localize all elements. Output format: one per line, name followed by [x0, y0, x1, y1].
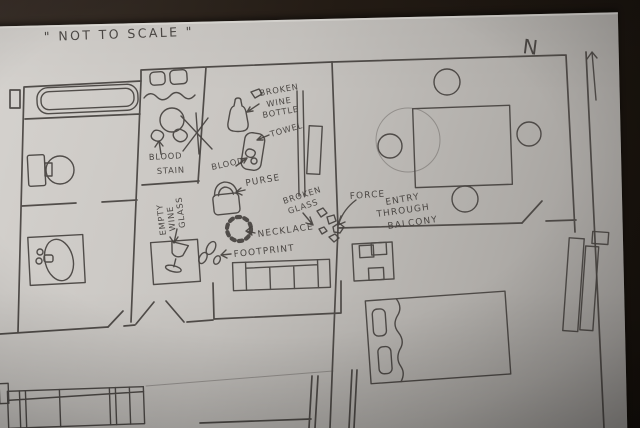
- pillow: [372, 309, 387, 337]
- purse: [211, 181, 240, 216]
- bed: [365, 291, 510, 384]
- balcony-chair-bottom: [452, 186, 478, 212]
- balcony-chair-top: [434, 69, 460, 95]
- blood-on-towel: [246, 149, 256, 158]
- floor-plan-sketch: " NOT TO SCALE " N BROKEN WINE BOTTLE TO…: [0, 0, 640, 428]
- balcony-chair-left: [378, 134, 402, 158]
- double-door-swings: [136, 301, 184, 324]
- overturned-stool: [160, 108, 184, 132]
- living-room-evidence: [197, 89, 344, 291]
- label-line: BROKEN: [259, 81, 300, 98]
- toilet: [27, 155, 74, 187]
- balcony-door-swing: [522, 201, 542, 223]
- label-line: STAIN: [157, 165, 186, 176]
- sliding-balcony-door: [297, 91, 322, 196]
- balcony: [376, 69, 541, 212]
- kitchen-counter: [144, 69, 195, 99]
- empty-wine-glass: [165, 242, 189, 274]
- couch-nook-outline: [213, 281, 341, 319]
- broken-wine-bottle-label: BROKEN WINE BOTTLE: [247, 81, 300, 120]
- arrow-to-entry-point: [338, 200, 356, 225]
- balcony-table: [413, 105, 513, 187]
- towel-label: TOWEL: [257, 120, 304, 140]
- not-to-scale-note: " NOT TO SCALE ": [44, 24, 195, 44]
- annotations: " NOT TO SCALE " N BROKEN WINE BOTTLE TO…: [44, 24, 597, 260]
- crime-scene-sketch-photo: " NOT TO SCALE " N BROKEN WINE BOTTLE TO…: [0, 0, 640, 428]
- pencil-guide-line: [146, 371, 333, 386]
- footprint-label: FOOTPRINT: [221, 244, 295, 260]
- kitchen: [144, 69, 212, 154]
- bathroom-walls: [18, 81, 141, 332]
- broken-glass-label: BROKEN GLASS: [282, 184, 323, 225]
- purse-label: PURSE: [236, 173, 281, 195]
- living-room-walls: [330, 62, 338, 428]
- label-line: BALCONY: [387, 215, 439, 232]
- label-line: FOOTPRINT: [233, 244, 295, 260]
- label-line: NECKLACE: [257, 222, 314, 240]
- hallway-walls: [200, 370, 357, 428]
- broken-glass-shards: [317, 208, 344, 242]
- blanket-edge: [393, 299, 405, 382]
- bottom-walls: [0, 320, 213, 334]
- label-line: BLOOD: [149, 150, 183, 162]
- balcony-chair-right: [517, 122, 541, 146]
- bedroom: [352, 230, 609, 384]
- bathtub: [36, 84, 138, 114]
- wine-glass-table: [151, 239, 201, 284]
- necklace-label: NECKLACE: [246, 222, 314, 240]
- pillow: [378, 346, 393, 374]
- arrow-to-footprint: [221, 250, 231, 258]
- label-line: PURSE: [245, 173, 281, 189]
- balcony-walls: [332, 52, 604, 428]
- broken-wine-bottle: [228, 98, 248, 132]
- blood-label: BLOOD: [210, 155, 247, 172]
- force-entry-label: FORCE ENTRY THROUGH BALCONY: [338, 190, 439, 232]
- blood-stain-label: BLOOD STAIN: [149, 141, 186, 176]
- empty-wine-glass-label: EMPTY WINE GLASS: [154, 196, 188, 236]
- compass-north-label: N: [521, 34, 539, 60]
- door-swing-left: [108, 311, 123, 327]
- sink: [28, 235, 85, 286]
- arrow-to-bottle: [247, 104, 259, 112]
- couch: [233, 259, 331, 290]
- nightstand: [352, 242, 394, 281]
- dresser: [563, 230, 609, 333]
- footprints: [197, 240, 222, 265]
- spatter-x-marks: [181, 113, 212, 154]
- erased-circle: [376, 108, 440, 172]
- sideboard: [0, 379, 145, 428]
- door-jamb: [10, 90, 20, 108]
